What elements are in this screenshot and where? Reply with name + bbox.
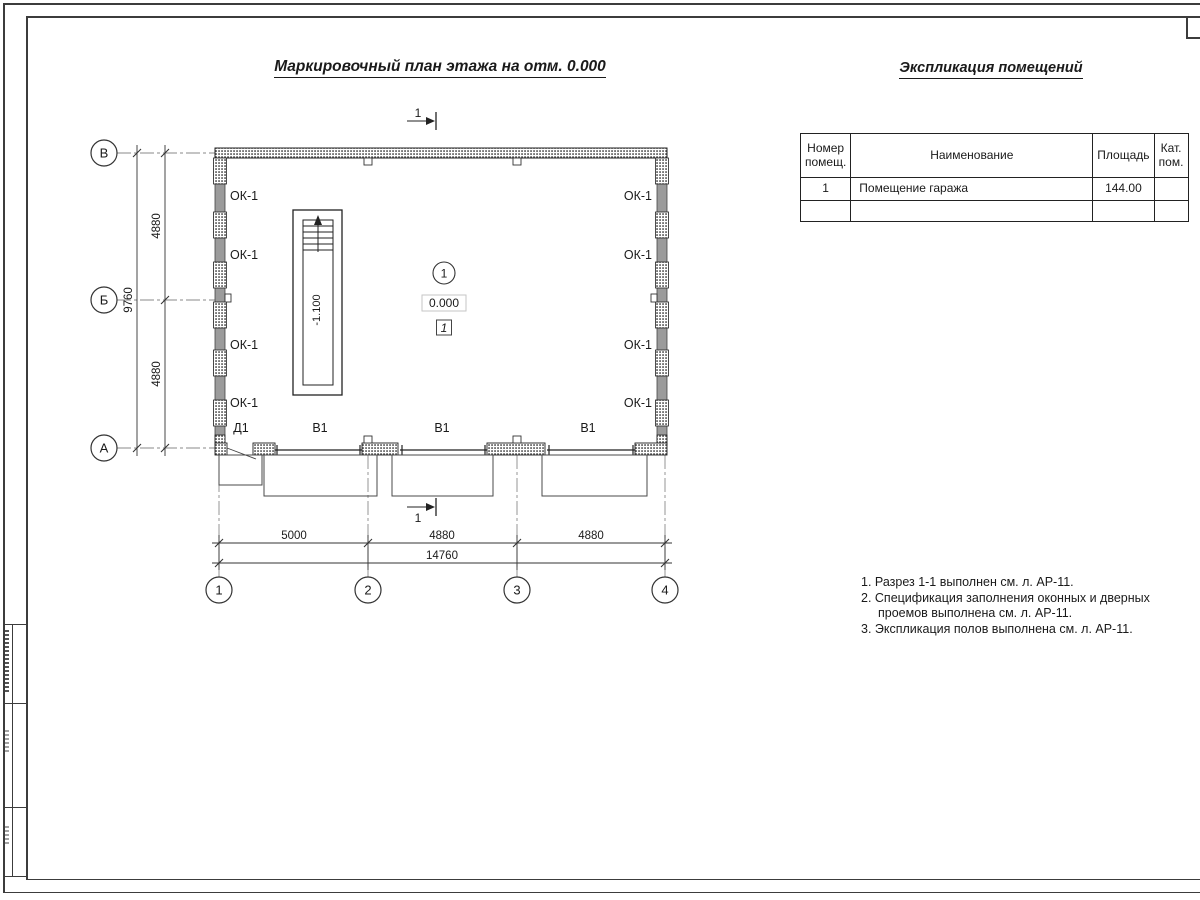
window-label: ОК-1 (624, 396, 652, 410)
dim-left-seg2: 4880 (151, 361, 163, 387)
cell-room-number (801, 201, 851, 222)
dim-bottom-seg3: 4880 (578, 530, 604, 542)
axis-label: В (100, 146, 109, 161)
window-label: ОК-1 (624, 248, 652, 262)
sheet-outer-left-line (3, 3, 5, 893)
stamp-strip-caption (5, 826, 9, 846)
axis-label: 3 (513, 583, 520, 598)
axis-tick-square (364, 436, 372, 443)
dim-left-total: 9760 (123, 287, 135, 313)
top-wall (215, 148, 667, 158)
axis-label: Б (100, 293, 109, 308)
window-label: ОК-1 (230, 248, 258, 262)
plan-title-text: Маркировочный план этажа на отм. 0.000 (274, 58, 606, 78)
note-line: 1. Разрез 1-1 выполнен см. л. АР-11. (861, 575, 1177, 591)
axis-tick-square (225, 294, 231, 302)
axis-label: 1 (215, 583, 222, 598)
sheet-outer-bottom-line (3, 892, 1200, 894)
axis-bubbles-bottom: 1 2 3 4 (206, 577, 678, 603)
window-label: ОК-1 (230, 189, 258, 203)
plan-title: Маркировочный план этажа на отм. 0.000 (230, 58, 650, 76)
col-header-area: Площадь (1093, 134, 1154, 178)
cell-room-area (1093, 201, 1154, 222)
section-mark-top: 1 (407, 106, 436, 130)
stamp-strip-line (3, 807, 27, 808)
section-number: 1 (415, 106, 422, 120)
dim-bottom-seg1: 5000 (281, 530, 307, 542)
cell-room-name (851, 201, 1093, 222)
window-label: ОК-1 (230, 338, 258, 352)
table-row: 1 Помещение гаража 144.00 (801, 178, 1189, 201)
dimension-ticks (133, 149, 169, 452)
axis-label: А (100, 441, 109, 456)
corner-cell-bottom-line (1186, 37, 1200, 39)
axis-tick-square (513, 158, 521, 165)
note-line: проемов выполнена см. л. АР-11. (861, 606, 1177, 622)
room-level: 0.000 (429, 296, 459, 310)
stamp-strip-line (3, 876, 27, 877)
col-header-category: Кат. пом. (1154, 134, 1188, 178)
cell-room-number: 1 (801, 178, 851, 201)
cell-room-category (1154, 178, 1188, 201)
stamp-strip-caption (5, 630, 9, 694)
note-line: 3. Экспликация полов выполнена см. л. АР… (861, 622, 1177, 638)
axis-label: 2 (364, 583, 371, 598)
window-label: ОК-1 (624, 189, 652, 203)
axis-label: 4 (661, 583, 668, 598)
stamp-strip-line (3, 624, 27, 625)
frame-top-line (26, 16, 1200, 18)
cell-room-category (1154, 201, 1188, 222)
col-header-number: Номер помещ. (801, 134, 851, 178)
room-number: 1 (441, 267, 448, 281)
schedule-title: Экспликация помещений (800, 60, 1182, 76)
dim-bottom-total: 14760 (426, 550, 458, 562)
drawing-sheet: Маркировочный план этажа на отм. 0.000 Э… (0, 0, 1200, 900)
stair-pit: -1.100 (293, 210, 342, 395)
gate-aprons (219, 455, 647, 496)
note-line: 2. Спецификация заполнения оконных и две… (861, 591, 1177, 607)
stamp-strip-line (3, 703, 27, 704)
floor-plan: 1 (80, 90, 720, 610)
gate-label: В1 (580, 421, 595, 435)
left-dimensions (133, 145, 169, 456)
col-header-name: Наименование (851, 134, 1093, 178)
door-swing (227, 448, 256, 459)
axis-tick-square (364, 158, 372, 165)
bottom-wall-piers (215, 443, 667, 455)
axis-tick-square (651, 294, 657, 302)
sheet-outer-top-line (3, 3, 1200, 5)
frame-left-line (26, 16, 28, 880)
frame-bottom-line (26, 879, 1200, 881)
stamp-strip-caption (5, 730, 9, 754)
cell-room-area: 144.00 (1093, 178, 1154, 201)
door-label: Д1 (233, 421, 248, 435)
room-marker: 1 0.000 1 (422, 262, 466, 335)
window-label: ОК-1 (230, 396, 258, 410)
dim-left-seg1: 4880 (151, 213, 163, 239)
room-schedule-table: Номер помещ. Наименование Площадь Кат. п… (800, 133, 1189, 222)
stamp-strip-divider (12, 624, 13, 877)
axis-tick-square (513, 436, 521, 443)
table-row (801, 201, 1189, 222)
stair-level-label: -1.100 (311, 294, 323, 325)
corner-cell-left-line (1186, 16, 1188, 38)
schedule-title-text: Экспликация помещений (899, 60, 1082, 79)
window-label: ОК-1 (624, 338, 652, 352)
section-number: 1 (415, 511, 422, 525)
dim-bottom-seg2: 4880 (429, 530, 455, 542)
gate-thresholds (275, 445, 635, 455)
notes-block: 1. Разрез 1-1 выполнен см. л. АР-11. 2. … (861, 575, 1177, 637)
floor-type-number: 1 (441, 321, 448, 335)
axis-bubbles-left: В Б А (91, 140, 117, 461)
gate-label: В1 (312, 421, 327, 435)
cell-room-name: Помещение гаража (851, 178, 1093, 201)
section-mark-bottom: 1 (407, 498, 436, 525)
gate-label: В1 (434, 421, 449, 435)
